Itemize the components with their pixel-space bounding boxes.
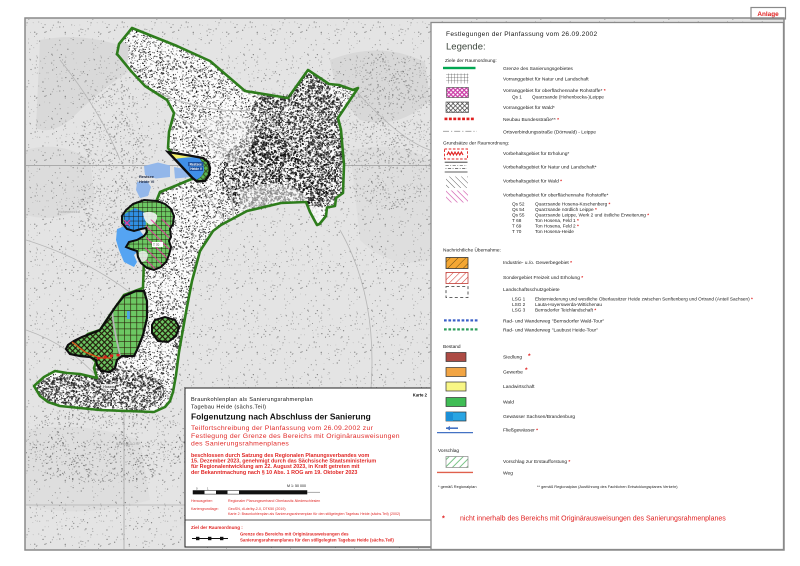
svg-text:Restsee: Restsee xyxy=(190,162,202,166)
svg-text:Quarzsande Hosena-Koschenberg: Quarzsande Hosena-Koschenberg * xyxy=(535,202,610,207)
svg-text:Nachrichtliche Übernahme:: Nachrichtliche Übernahme: xyxy=(443,247,501,254)
svg-text:Landschaftsschutzgebiete: Landschaftsschutzgebiete xyxy=(503,287,560,293)
svg-text:LSG 3: LSG 3 xyxy=(512,308,526,313)
svg-text:Ziele der Raumordnung:: Ziele der Raumordnung: xyxy=(445,58,497,64)
svg-text:GeoSN, dl-de/by-2-0, DTK50 (20: GeoSN, dl-de/by-2-0, DTK50 (2019) xyxy=(228,507,286,511)
svg-text:Qs 52: Qs 52 xyxy=(512,202,525,207)
svg-text:Vorranggebiet für Wald*: Vorranggebiet für Wald* xyxy=(503,105,555,111)
svg-text:Herausgeber:: Herausgeber: xyxy=(191,499,213,503)
svg-text:BERNSDORF: BERNSDORF xyxy=(116,442,141,446)
svg-text:Fließgewässer *: Fließgewässer * xyxy=(503,428,538,434)
svg-text:Vorbehaltsgebiet für Wald *: Vorbehaltsgebiet für Wald * xyxy=(503,179,562,185)
svg-text:Festlegungen der Planfassung v: Festlegungen der Planfassung vom 26.09.2… xyxy=(446,31,597,38)
svg-text:Lauta-Hoyerswerda-Wittichenau: Lauta-Hoyerswerda-Wittichenau xyxy=(535,302,602,307)
svg-text:Ton Hosena, Feld 2 *: Ton Hosena, Feld 2 * xyxy=(535,224,579,229)
svg-text:Tagebau Heide (sächs.Teil): Tagebau Heide (sächs.Teil) xyxy=(191,405,266,411)
svg-text:Heide V: Heide V xyxy=(190,167,203,171)
svg-text:nicht innerhalb des Bereichs: nicht innerhalb des Bereichs mit Originä… xyxy=(460,516,726,523)
svg-text:Qs 55: Qs 55 xyxy=(512,213,525,218)
svg-text:Rad- und Wanderweg "Bernsdorfe: Rad- und Wanderweg "Bernsdorfer Wald-Tou… xyxy=(503,319,604,325)
svg-text:Braunkohlenplan als Sanierungs: Braunkohlenplan als Sanierungsrahmenplan xyxy=(191,397,313,403)
svg-text:Quarzsande (Hohenbocka-)Leippe: Quarzsande (Hohenbocka-)Leippe xyxy=(532,95,604,100)
svg-text:T 68: T 68 xyxy=(512,218,522,223)
svg-text:Vorbehaltsgebiet für Natur und: Vorbehaltsgebiet für Natur und Landschaf… xyxy=(503,165,597,171)
svg-text:Ton Hosena, Feld 1 *: Ton Hosena, Feld 1 * xyxy=(535,218,579,223)
svg-text:Quarzsande nördlich Leippe *: Quarzsande nördlich Leippe * xyxy=(535,207,597,212)
svg-text:Grenze des Sanierungsgebietes: Grenze des Sanierungsgebietes xyxy=(503,66,573,72)
svg-text:Landwirtschaft: Landwirtschaft xyxy=(503,384,535,390)
svg-text:*: * xyxy=(528,353,531,360)
svg-text:Neubau Bundesstraße** *: Neubau Bundesstraße** * xyxy=(503,117,559,123)
svg-text:T 69: T 69 xyxy=(512,224,522,229)
svg-text:Teilfortschreibung der Planfas: Teilfortschreibung der Planfassung vom 2… xyxy=(191,425,374,432)
svg-text:Quarzsande Leippe, Werk 2 und: Quarzsande Leippe, Werk 2 und östliche E… xyxy=(535,213,649,218)
svg-text:Grenze des Bereichs mit Origin: Grenze des Bereichs mit Originärausweisu… xyxy=(240,532,349,537)
svg-text:LSG 1: LSG 1 xyxy=(512,297,526,302)
svg-text:Kartengrundlage:: Kartengrundlage: xyxy=(191,507,219,511)
svg-text:Vorbehaltsgebiet für Erholung*: Vorbehaltsgebiet für Erholung* xyxy=(503,151,569,157)
svg-text:Gewässer Sachsen/Brandenburg: Gewässer Sachsen/Brandenburg xyxy=(503,414,575,420)
svg-text:Wald: Wald xyxy=(503,400,514,406)
svg-text:Karte 2: Karte 2 xyxy=(413,393,428,398)
svg-text:Hosena: Hosena xyxy=(103,385,117,389)
svg-text:** gemäß Regionalplan (Ausführ: ** gemäß Regionalplan (Ausführung des Fa… xyxy=(537,484,678,489)
svg-text:* gemäß Regionalplan: * gemäß Regionalplan xyxy=(438,484,477,489)
svg-text:T 70: T 70 xyxy=(512,229,522,234)
svg-text:Rad- und Wanderweg "Laubust He: Rad- und Wanderweg "Laubust Heide-Tour" xyxy=(503,328,598,334)
svg-text:Grundsätze der Raumordnung:: Grundsätze der Raumordnung: xyxy=(443,141,509,147)
svg-text:Weg: Weg xyxy=(503,471,513,477)
svg-text:LAUTA: LAUTA xyxy=(283,93,299,98)
svg-text:Bestand: Bestand xyxy=(443,344,461,350)
svg-text:Folgenutzung nach Abschluss de: Folgenutzung nach Abschluss der Sanierun… xyxy=(191,412,371,422)
svg-text:Anlage: Anlage xyxy=(757,11,779,18)
svg-text:Ziel der Raumordnung :: Ziel der Raumordnung : xyxy=(191,525,243,530)
svg-text:Vorbehaltsgebiet für oberfläch: Vorbehaltsgebiet für oberflächennahe Roh… xyxy=(503,193,609,199)
svg-text:Ton Hosena-Heide: Ton Hosena-Heide xyxy=(535,229,574,234)
svg-text:Siedlung: Siedlung xyxy=(503,355,522,361)
svg-text:*: * xyxy=(442,514,445,523)
svg-text:Heide VI: Heide VI xyxy=(139,179,154,184)
svg-text:Vorschlag zur Erstaufforstung: Vorschlag zur Erstaufforstung * xyxy=(503,459,570,465)
svg-text:Karte 2: Braunkohlenplan als S: Karte 2: Braunkohlenplan als Sanierungsr… xyxy=(228,512,400,516)
svg-text:der Bekanntmachung nach § 10 A: der Bekanntmachung nach § 10 Abs. 1 ROG … xyxy=(191,470,357,476)
svg-text:Festlegung der Grenze des Bere: Festlegung der Grenze des Bereichs mit O… xyxy=(191,433,400,440)
svg-text:Qs 1: Qs 1 xyxy=(512,95,522,100)
svg-text:Vorranggebiet für Natur und La: Vorranggebiet für Natur und Landschaft xyxy=(503,77,589,83)
svg-text:M 1: 50 000: M 1: 50 000 xyxy=(287,484,306,488)
svg-text:T 70: T 70 xyxy=(153,243,160,247)
svg-text:Legende:: Legende: xyxy=(446,42,486,53)
svg-text:des Sanierungsrahmenplanes: des Sanierungsrahmenplanes xyxy=(191,440,289,447)
svg-text:Regionaler Planungsverband Obe: Regionaler Planungsverband Oberlausitz-N… xyxy=(228,499,320,503)
svg-text:Industrie- u./o. Gewerbegebiet: Industrie- u./o. Gewerbegebiet * xyxy=(503,260,572,266)
svg-text:Hohenbocka: Hohenbocka xyxy=(58,210,80,214)
svg-text:Elsterniederung und westliche: Elsterniederung und westliche Oberlausit… xyxy=(535,297,753,302)
svg-text:Gewerbe: Gewerbe xyxy=(503,370,523,376)
svg-text:Sanierungsrahmenplanes für den: Sanierungsrahmenplanes für den stillgele… xyxy=(240,538,394,543)
svg-text:LSG 2: LSG 2 xyxy=(512,302,526,307)
svg-text:Sondergebiet Freizeit und Erho: Sondergebiet Freizeit und Erholung * xyxy=(503,275,583,281)
svg-text:Vorranggebiet für oberflächenn: Vorranggebiet für oberflächennahe Rohsto… xyxy=(503,88,606,94)
svg-text:Ortsverbindungsstraße (Dörrwal: Ortsverbindungsstraße (Dörrwald) - Leipp… xyxy=(503,130,596,136)
svg-text:*: * xyxy=(525,367,528,374)
svg-text:Qs 54: Qs 54 xyxy=(512,207,525,212)
svg-text:Bernsdorfer Teichlandschaft *: Bernsdorfer Teichlandschaft * xyxy=(535,308,596,313)
svg-text:Vorschlag: Vorschlag xyxy=(438,448,459,454)
